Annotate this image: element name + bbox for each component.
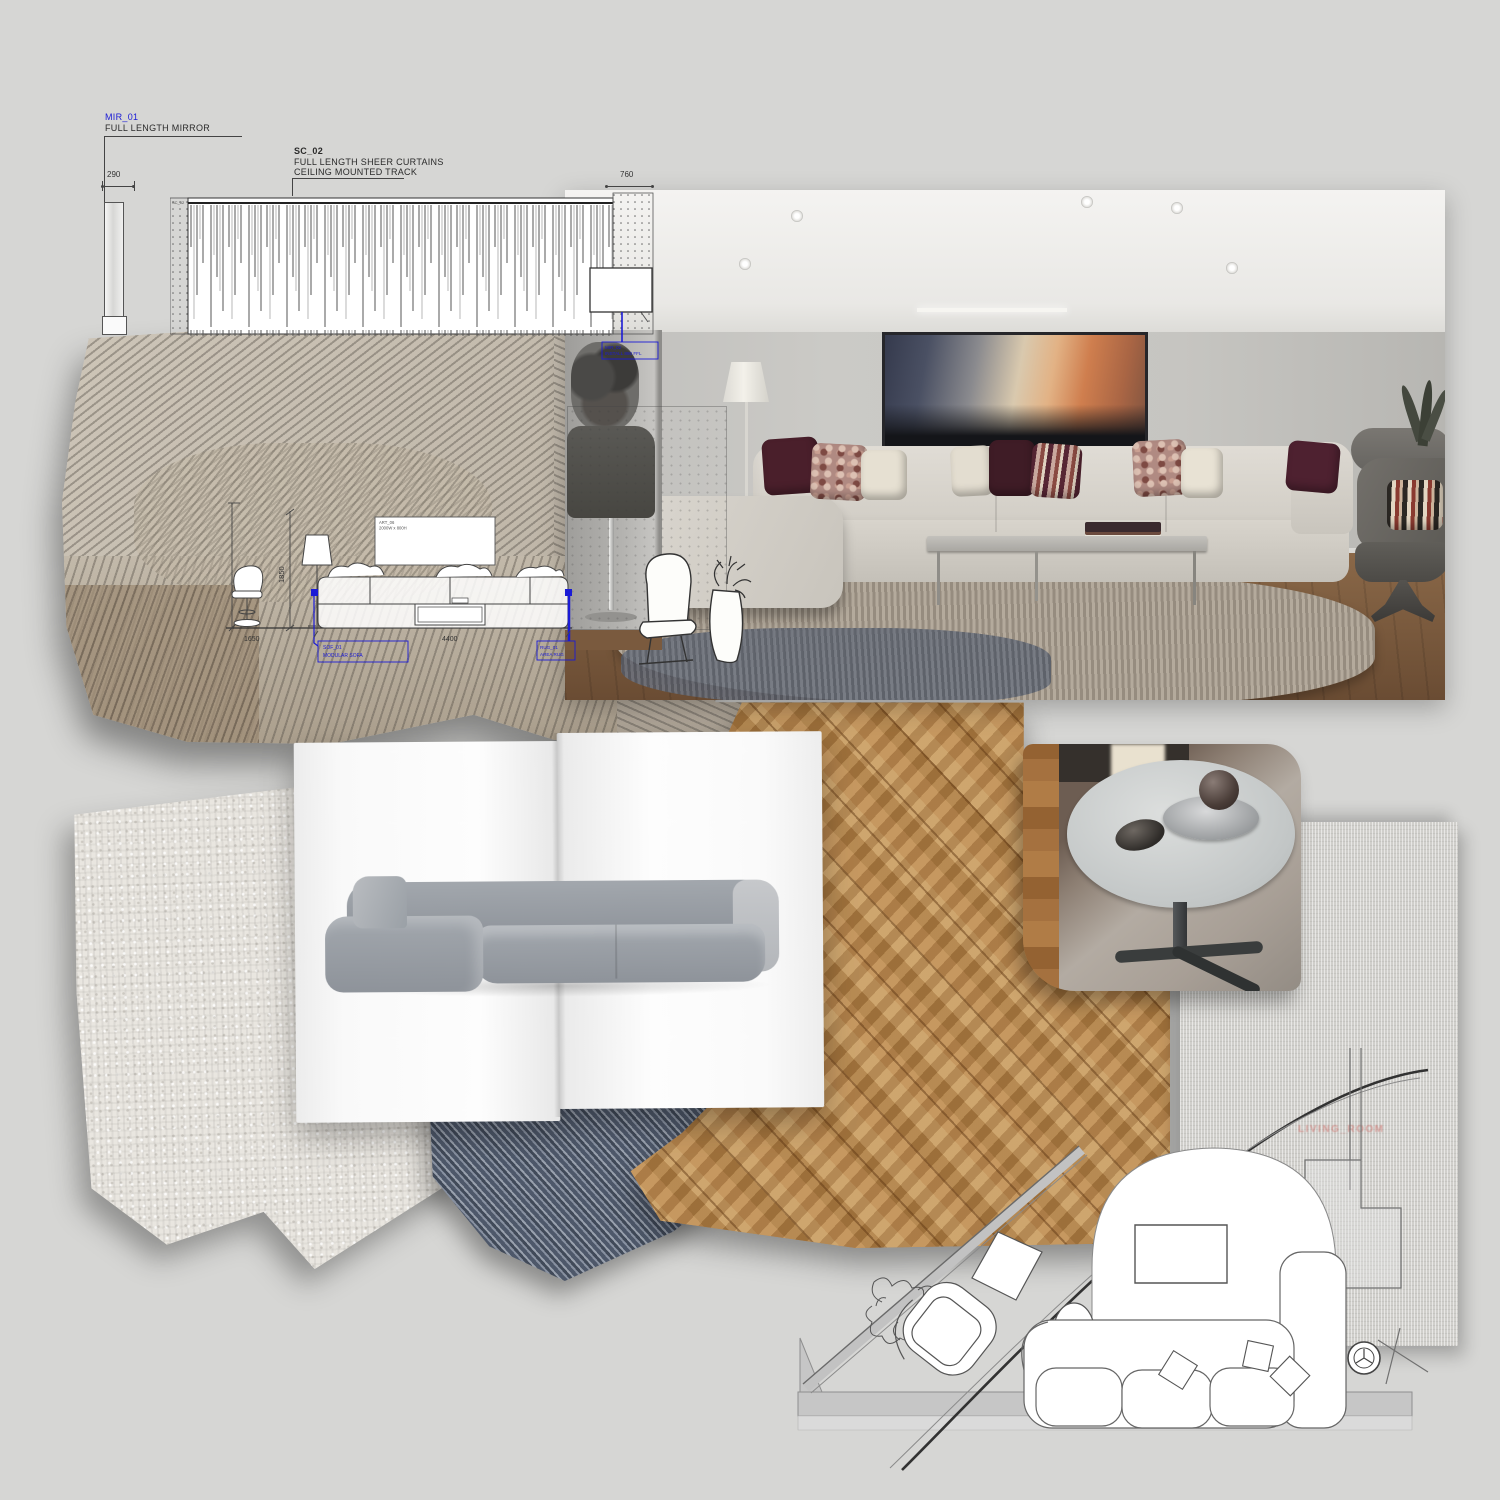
elevation-sofa [318,563,568,628]
coffee-table-leg [937,551,940,605]
plan-tv [1135,1225,1227,1283]
plan-cushion [972,1232,1042,1300]
pillow-cream [861,450,907,500]
elevation-height-dim [286,509,294,631]
right-tag-code: RUG_01 [540,645,558,650]
mirror-tag-label: FULL LENGTH MIRROR [105,123,210,133]
wall-tag-code: MIR_02 [605,345,622,350]
elevation-dim-bottom: 4400 [442,636,458,643]
right-tag-label: AREA RUG [540,652,564,657]
mirror-dim: 290 [107,170,120,179]
elevation-left-dim [228,503,240,631]
side-table-photo [1023,744,1301,991]
lounge-chair-seat [1355,542,1445,582]
sofa-seats [475,924,765,984]
elevation-bar-stool [232,566,263,627]
coffee-table-books [1085,522,1161,532]
recessed-light [791,210,803,222]
mirror-elevation-base [102,316,127,335]
recessed-light [1081,196,1093,208]
wall-detail-box [590,268,652,312]
magazine-sofa-photo [325,871,796,1014]
recessed-light [1171,202,1183,214]
curtain-tag-label1: FULL LENGTH SHEER CURTAINS [294,157,444,167]
marble-sphere [1199,770,1239,810]
plan-side-table [1348,1342,1380,1374]
pillow-burgundy [1285,440,1341,494]
mirror-elevation [104,202,124,318]
sketch-chair-vase [633,538,753,678]
curtain-tag-label2: CEILING MOUNTED TRACK [294,167,417,177]
curtain-dim: 760 [620,170,633,179]
wall-tag-label: INSTALL 880 FFL [605,351,642,356]
pillow-floral [810,443,869,502]
floor-plan-sketch [790,1040,1490,1475]
pillow-cream [1181,448,1223,498]
pillow-maroon [989,440,1035,496]
sofa-elevation-drawing: 1850 ART_06 2000W x 800H [220,465,580,675]
curtain-elevation: SC_02 MIR_02 INSTALL 880 FFL [170,192,660,370]
coffee-table-leg [1193,551,1196,605]
sofa-left-back-corner [353,876,407,928]
mood-board: LIVING_ROOM [0,0,1500,1500]
pillow-cream [950,445,995,497]
photo-wood-floor [1023,744,1059,991]
elevation-art-size: 2000W x 800H [379,526,407,531]
wall-hatch-block [613,193,653,334]
pillow-striped [1029,442,1083,499]
sofa-tag-label: MODULAR SOFA [323,653,363,659]
curtain-leader [292,178,404,179]
recessed-light [1226,262,1238,274]
recessed-light [739,258,751,270]
mirror-tag-code: MIR_01 [105,112,138,122]
wall-light-bar [917,308,1067,312]
elevation-dim-height: 1850 [277,566,286,583]
coffee-table-top [927,536,1207,551]
magazine-spread [294,731,825,1129]
elevation-art-code: ART_06 [379,520,395,525]
mirror-leader [104,136,242,137]
elevation-dim-left: 1650 [244,636,260,643]
curtain-tag-code: SC_02 [294,146,323,156]
lounge-chair-pillow [1387,480,1443,530]
living-room-render [565,190,1445,700]
curtain-panel-tag: SC_02 [172,200,185,205]
coffee-table-leg [1035,551,1038,601]
sofa-tag-code: SOF_01 [323,645,342,651]
plant [1401,380,1445,456]
pillow-floral [1132,439,1189,498]
